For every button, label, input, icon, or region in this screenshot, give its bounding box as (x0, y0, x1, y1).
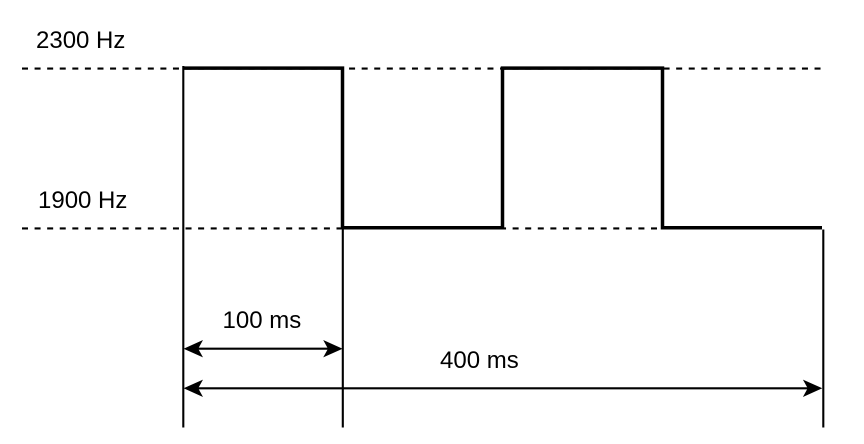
svg-text:1900 Hz: 1900 Hz (38, 187, 127, 214)
svg-text:2300 Hz: 2300 Hz (36, 27, 125, 54)
svg-text:400 ms: 400 ms (440, 347, 519, 374)
svg-text:100 ms: 100 ms (223, 307, 302, 334)
